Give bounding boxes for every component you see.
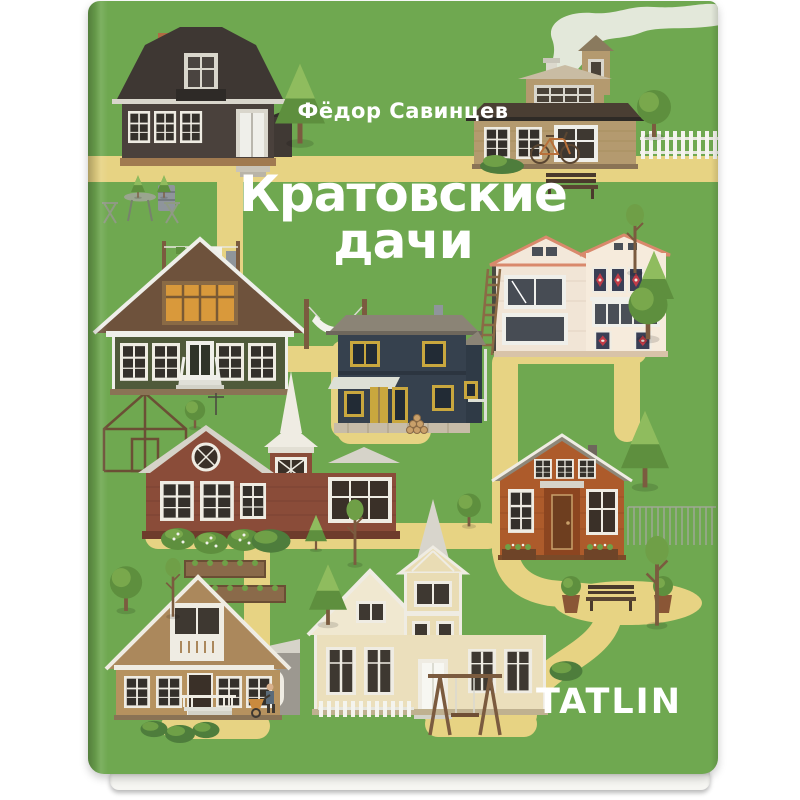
author-name: Фёдор Савинцев [88, 99, 718, 123]
metal-fence [628, 507, 716, 545]
book-cover-photo: Фёдор Савинцев Кратовские дачи TATLIN [0, 0, 800, 800]
front-cover: Фёдор Савинцев Кратовские дачи TATLIN [88, 1, 718, 774]
house-orange [492, 435, 716, 560]
book: Фёдор Савинцев Кратовские дачи TATLIN [88, 1, 718, 796]
book-title: Кратовские дачи [88, 171, 718, 265]
house-tan-chimney [466, 4, 718, 174]
house-navy [326, 305, 487, 434]
title-line-2: дачи [333, 212, 472, 270]
publisher-logo: TATLIN [536, 682, 682, 722]
